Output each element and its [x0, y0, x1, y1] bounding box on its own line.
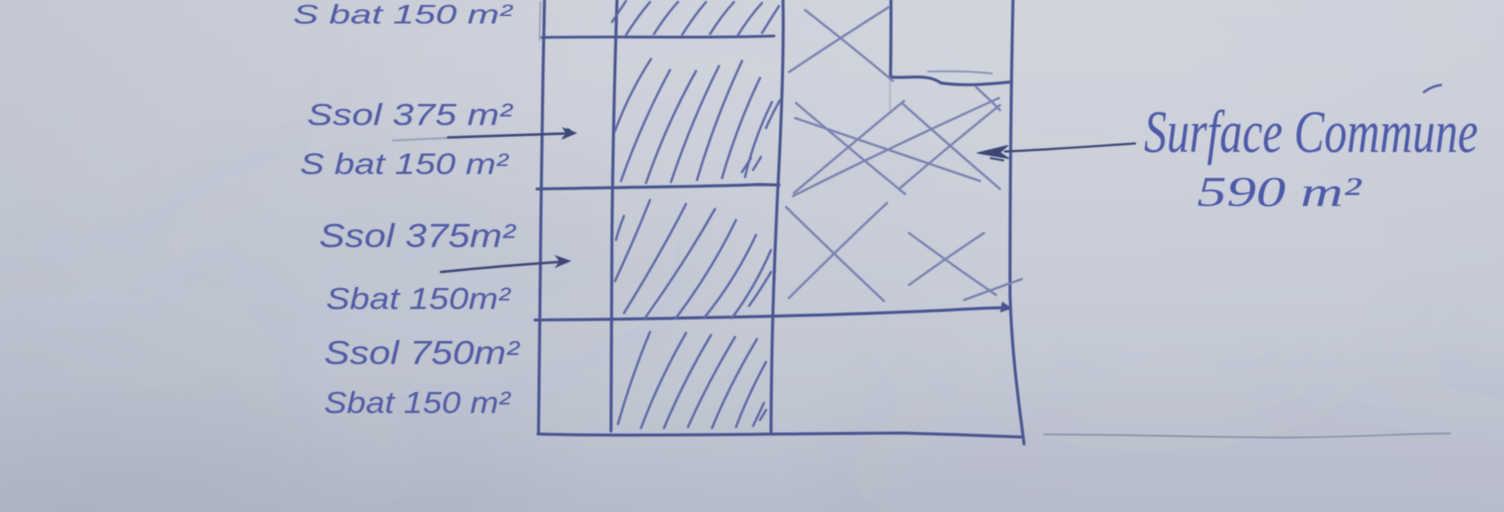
svg-text:S bat 150 m²: S bat 150 m²: [293, 0, 513, 30]
svg-text:Ssol 750m²: Ssol 750m²: [324, 334, 520, 371]
svg-text:590 m²: 590 m²: [1197, 170, 1363, 216]
svg-text:Ssol 375 m²: Ssol 375 m²: [307, 97, 514, 132]
svg-text:Ssol 375m²: Ssol 375m²: [319, 217, 516, 254]
svg-text:Surface Commune: Surface Commune: [1144, 99, 1478, 165]
svg-text:Sbat 150 m²: Sbat 150 m²: [324, 385, 512, 420]
svg-text:Sbat 150m²: Sbat 150m²: [326, 282, 512, 316]
svg-text:S bat 150 m²: S bat 150 m²: [300, 148, 509, 181]
